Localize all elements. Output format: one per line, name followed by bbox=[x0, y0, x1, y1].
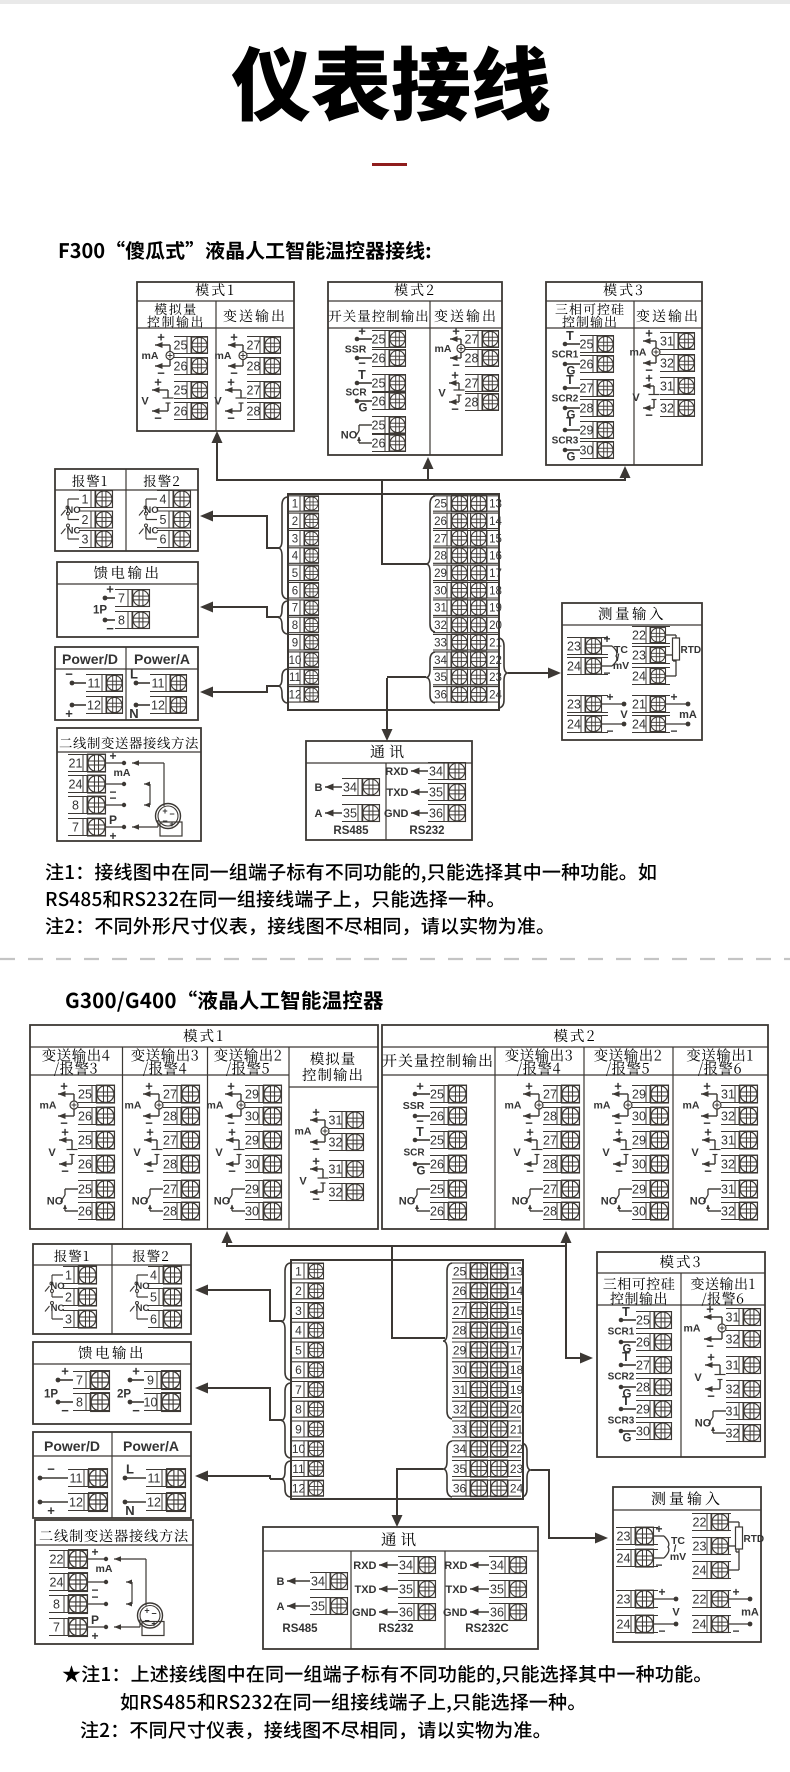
svg-text:7: 7 bbox=[76, 1374, 83, 1388]
svg-text:+: + bbox=[146, 1125, 154, 1140]
svg-text:−: − bbox=[154, 411, 162, 426]
svg-text:27: 27 bbox=[465, 377, 479, 391]
svg-text:35: 35 bbox=[434, 672, 447, 684]
svg-text:26: 26 bbox=[430, 1110, 444, 1124]
svg-text:28: 28 bbox=[163, 1205, 177, 1219]
svg-text:1: 1 bbox=[295, 1264, 302, 1278]
svg-text:RXD: RXD bbox=[385, 766, 408, 778]
svg-text:+: + bbox=[706, 1302, 714, 1317]
svg-text:T: T bbox=[622, 1305, 630, 1319]
svg-text:NO: NO bbox=[132, 1196, 149, 1208]
svg-text:mA: mA bbox=[741, 1607, 759, 1619]
svg-text:27: 27 bbox=[580, 382, 594, 396]
svg-text:+: + bbox=[312, 1105, 320, 1120]
svg-text:23: 23 bbox=[489, 672, 502, 684]
svg-text:11: 11 bbox=[152, 677, 165, 691]
svg-text:31: 31 bbox=[329, 1114, 343, 1128]
svg-text:23: 23 bbox=[632, 649, 646, 663]
svg-text:4: 4 bbox=[150, 1269, 157, 1283]
svg-text:RS232: RS232 bbox=[378, 1623, 413, 1635]
svg-text:T: T bbox=[566, 373, 574, 387]
svg-text:14: 14 bbox=[489, 516, 502, 528]
svg-text:25: 25 bbox=[372, 377, 386, 391]
svg-text:+: + bbox=[707, 1350, 715, 1365]
svg-text:+: + bbox=[615, 1125, 623, 1140]
svg-text:21: 21 bbox=[69, 757, 83, 771]
svg-text:28: 28 bbox=[543, 1205, 557, 1219]
svg-text:28: 28 bbox=[543, 1110, 557, 1124]
svg-text:25: 25 bbox=[78, 1088, 92, 1102]
svg-text:V: V bbox=[620, 709, 628, 721]
svg-text:+: + bbox=[603, 632, 610, 646]
svg-text:28: 28 bbox=[247, 360, 261, 374]
svg-text:−: − bbox=[61, 1403, 69, 1418]
svg-text:30: 30 bbox=[245, 1158, 259, 1172]
svg-text:RTD: RTD bbox=[744, 1534, 765, 1545]
svg-text:26: 26 bbox=[174, 405, 188, 419]
svg-text:26: 26 bbox=[580, 358, 594, 372]
svg-text:+: + bbox=[162, 806, 167, 816]
svg-text:+: + bbox=[65, 706, 73, 721]
svg-text:TXD: TXD bbox=[446, 1584, 468, 1596]
svg-text:+: + bbox=[61, 1125, 69, 1140]
svg-text:mA: mA bbox=[684, 1323, 701, 1335]
svg-text:+: + bbox=[91, 1545, 98, 1559]
svg-text:28: 28 bbox=[453, 1324, 467, 1338]
svg-text:29: 29 bbox=[245, 1183, 259, 1197]
svg-text:32: 32 bbox=[660, 402, 674, 416]
svg-text:−: − bbox=[169, 809, 174, 819]
svg-text:30: 30 bbox=[636, 1425, 650, 1439]
svg-text:V: V bbox=[133, 1147, 141, 1159]
svg-text:35: 35 bbox=[490, 1583, 504, 1597]
svg-text:25: 25 bbox=[430, 1183, 444, 1197]
svg-text:+: + bbox=[525, 1079, 533, 1094]
svg-text:34: 34 bbox=[490, 1559, 504, 1573]
svg-text:10: 10 bbox=[144, 1396, 158, 1410]
svg-text:31: 31 bbox=[721, 1088, 735, 1102]
svg-text:23: 23 bbox=[617, 1530, 631, 1544]
svg-text:+: + bbox=[658, 1585, 665, 1599]
svg-text:T: T bbox=[566, 329, 574, 343]
svg-text:12: 12 bbox=[289, 690, 302, 702]
svg-text:13: 13 bbox=[510, 1264, 524, 1278]
svg-text:+: + bbox=[645, 371, 653, 386]
svg-text:16: 16 bbox=[489, 551, 502, 563]
svg-text:G: G bbox=[417, 1166, 426, 1178]
svg-text:−: − bbox=[655, 1558, 662, 1572]
svg-text:mA: mA bbox=[96, 1563, 113, 1575]
svg-text:+: + bbox=[106, 582, 114, 597]
svg-text:4: 4 bbox=[292, 551, 299, 563]
svg-text:mA: mA bbox=[630, 347, 647, 359]
svg-text:SCR3: SCR3 bbox=[552, 436, 579, 447]
svg-text:NO: NO bbox=[47, 1196, 64, 1208]
svg-text:+: + bbox=[132, 1364, 140, 1379]
svg-text:2: 2 bbox=[292, 516, 298, 528]
svg-text:−: − bbox=[732, 1624, 739, 1638]
svg-text:26: 26 bbox=[372, 437, 386, 451]
svg-text:L: L bbox=[126, 1462, 134, 1477]
svg-text:32: 32 bbox=[434, 620, 447, 632]
svg-text:32: 32 bbox=[726, 1333, 740, 1347]
svg-text:36: 36 bbox=[434, 690, 447, 702]
svg-text:+: + bbox=[732, 1585, 739, 1599]
svg-text:30: 30 bbox=[434, 585, 447, 597]
svg-text:+: + bbox=[526, 1125, 534, 1140]
svg-text:15: 15 bbox=[489, 533, 502, 545]
svg-text:25: 25 bbox=[372, 333, 386, 347]
svg-text:26: 26 bbox=[430, 1205, 444, 1219]
svg-text:32: 32 bbox=[453, 1403, 467, 1417]
svg-text:31: 31 bbox=[453, 1383, 467, 1397]
svg-text:RXD: RXD bbox=[353, 1560, 376, 1572]
svg-text:1P: 1P bbox=[93, 605, 107, 617]
svg-text:V: V bbox=[513, 1147, 521, 1159]
svg-text:−: − bbox=[704, 1164, 712, 1179]
svg-text:23: 23 bbox=[617, 1593, 631, 1607]
svg-text:3: 3 bbox=[65, 1313, 72, 1327]
svg-text:18: 18 bbox=[510, 1363, 524, 1377]
svg-text:8: 8 bbox=[295, 1403, 302, 1417]
svg-text:V: V bbox=[694, 1372, 702, 1384]
svg-text:35: 35 bbox=[429, 786, 443, 800]
svg-text:21: 21 bbox=[510, 1422, 524, 1436]
svg-text:−: − bbox=[227, 411, 235, 426]
svg-text:25: 25 bbox=[78, 1134, 92, 1148]
svg-text:mA: mA bbox=[207, 1100, 224, 1112]
svg-text:V: V bbox=[141, 396, 149, 408]
svg-text:9: 9 bbox=[292, 637, 298, 649]
svg-text:31: 31 bbox=[726, 1311, 740, 1325]
svg-text:+: + bbox=[358, 324, 366, 339]
svg-text:36: 36 bbox=[399, 1606, 413, 1620]
svg-text:−: − bbox=[603, 666, 610, 680]
svg-text:TXD: TXD bbox=[355, 1584, 377, 1596]
svg-text:11: 11 bbox=[289, 672, 301, 684]
svg-text:−: − bbox=[658, 1624, 665, 1638]
svg-text:NC: NC bbox=[145, 526, 159, 537]
svg-text:+: + bbox=[230, 330, 238, 345]
svg-text:29: 29 bbox=[434, 568, 447, 580]
svg-text:34: 34 bbox=[311, 1575, 325, 1589]
svg-text:SCR1: SCR1 bbox=[552, 350, 579, 361]
svg-text:SSR: SSR bbox=[403, 1100, 425, 1112]
svg-text:P: P bbox=[91, 1613, 99, 1627]
svg-text:34: 34 bbox=[343, 781, 357, 795]
svg-text:mA: mA bbox=[295, 1126, 312, 1138]
svg-text:G: G bbox=[359, 403, 368, 415]
svg-text:26: 26 bbox=[372, 352, 386, 366]
svg-text:+: + bbox=[614, 1079, 622, 1094]
svg-text:−: − bbox=[144, 1616, 149, 1626]
svg-text:mA: mA bbox=[683, 1100, 700, 1112]
svg-text:32: 32 bbox=[660, 357, 674, 371]
svg-text:4: 4 bbox=[295, 1324, 302, 1338]
svg-text:NO: NO bbox=[135, 1281, 149, 1292]
svg-text:32: 32 bbox=[726, 1383, 740, 1397]
svg-text:25: 25 bbox=[372, 419, 386, 433]
svg-text:31: 31 bbox=[721, 1134, 735, 1148]
svg-text:5: 5 bbox=[295, 1343, 302, 1357]
svg-text:34: 34 bbox=[399, 1559, 413, 1573]
svg-text:12: 12 bbox=[151, 699, 165, 713]
svg-text:+: + bbox=[416, 1079, 424, 1094]
svg-text:NO: NO bbox=[66, 505, 80, 516]
svg-text:−: − bbox=[151, 1609, 156, 1619]
svg-text:−: − bbox=[645, 408, 653, 423]
svg-text:28: 28 bbox=[163, 1158, 177, 1172]
svg-text:SCR1: SCR1 bbox=[608, 1327, 635, 1338]
svg-text:22: 22 bbox=[489, 655, 502, 667]
svg-text:2: 2 bbox=[82, 513, 89, 527]
svg-text:30: 30 bbox=[580, 444, 594, 458]
svg-text:22: 22 bbox=[632, 629, 646, 643]
svg-text:A: A bbox=[315, 808, 323, 820]
svg-text:31: 31 bbox=[660, 335, 674, 349]
svg-text:4: 4 bbox=[160, 493, 167, 507]
svg-text:22: 22 bbox=[50, 1553, 64, 1567]
svg-text:29: 29 bbox=[245, 1088, 259, 1102]
svg-text:NC: NC bbox=[51, 1303, 65, 1314]
svg-text:Power/A: Power/A bbox=[134, 651, 190, 667]
svg-text:+: + bbox=[109, 749, 116, 763]
svg-text:−: − bbox=[451, 402, 459, 417]
svg-text:35: 35 bbox=[311, 1600, 325, 1614]
svg-text:mV: mV bbox=[670, 1551, 686, 1563]
svg-text:NO: NO bbox=[341, 430, 358, 442]
svg-text:mA: mA bbox=[594, 1100, 611, 1112]
svg-text:B: B bbox=[315, 782, 323, 794]
svg-text:mA: mA bbox=[505, 1100, 522, 1112]
svg-text:mA: mA bbox=[215, 350, 232, 362]
svg-text:15: 15 bbox=[510, 1304, 524, 1318]
svg-text:27: 27 bbox=[247, 384, 261, 398]
svg-text:32: 32 bbox=[329, 1136, 343, 1150]
svg-text:31: 31 bbox=[660, 380, 674, 394]
svg-text:6: 6 bbox=[292, 585, 298, 597]
svg-text:25: 25 bbox=[78, 1183, 92, 1197]
svg-text:RXD: RXD bbox=[444, 1560, 467, 1572]
svg-text:9: 9 bbox=[147, 1374, 154, 1388]
svg-text:1: 1 bbox=[65, 1269, 72, 1283]
svg-text:24: 24 bbox=[693, 1564, 707, 1578]
svg-text:mV: mV bbox=[613, 660, 629, 672]
svg-text:7: 7 bbox=[72, 821, 79, 835]
svg-text:−: − bbox=[228, 1164, 236, 1179]
svg-text:30: 30 bbox=[632, 1158, 646, 1172]
svg-text:V: V bbox=[672, 1607, 680, 1619]
svg-text:NO: NO bbox=[512, 1196, 529, 1208]
svg-text:V: V bbox=[214, 396, 222, 408]
svg-text:25: 25 bbox=[636, 1314, 650, 1328]
svg-text:RTD: RTD bbox=[681, 645, 702, 656]
svg-text:−: − bbox=[132, 1403, 140, 1418]
svg-text:19: 19 bbox=[510, 1383, 524, 1397]
svg-text:3: 3 bbox=[295, 1304, 302, 1318]
svg-text:V: V bbox=[215, 1147, 223, 1159]
svg-text:V: V bbox=[632, 392, 640, 404]
svg-text:24: 24 bbox=[617, 1618, 631, 1632]
svg-text:+: + bbox=[144, 1606, 149, 1616]
svg-text:NO: NO bbox=[695, 1418, 712, 1430]
svg-text:32: 32 bbox=[721, 1158, 735, 1172]
svg-text:+: + bbox=[151, 1619, 156, 1629]
svg-text:24: 24 bbox=[69, 778, 83, 792]
svg-text:GND: GND bbox=[443, 1607, 468, 1619]
svg-text:+: + bbox=[157, 330, 165, 345]
svg-text:V: V bbox=[299, 1176, 307, 1188]
svg-text:mA: mA bbox=[142, 350, 159, 362]
svg-text:31: 31 bbox=[329, 1163, 343, 1177]
svg-text:26: 26 bbox=[78, 1110, 92, 1124]
svg-text:2: 2 bbox=[295, 1284, 302, 1298]
svg-text:14: 14 bbox=[510, 1284, 524, 1298]
svg-text:V: V bbox=[438, 388, 446, 400]
svg-text:TXD: TXD bbox=[387, 787, 409, 799]
svg-text:30: 30 bbox=[632, 1110, 646, 1124]
svg-text:32: 32 bbox=[726, 1427, 740, 1441]
svg-text:+: + bbox=[312, 1154, 320, 1169]
svg-text:V: V bbox=[602, 1147, 610, 1159]
svg-text:NC: NC bbox=[136, 1303, 150, 1314]
svg-text:Power/A: Power/A bbox=[123, 1438, 179, 1454]
svg-text:SCR: SCR bbox=[403, 1148, 425, 1159]
svg-text:+: + bbox=[227, 375, 235, 390]
svg-text:28: 28 bbox=[465, 352, 479, 366]
svg-text:26: 26 bbox=[430, 1158, 444, 1172]
svg-text:+: + bbox=[451, 368, 459, 383]
svg-text:23: 23 bbox=[510, 1462, 524, 1476]
svg-text:+: + bbox=[47, 1503, 55, 1518]
svg-text:−: − bbox=[615, 1164, 623, 1179]
svg-text:+: + bbox=[655, 1522, 662, 1536]
svg-text:2P: 2P bbox=[117, 1389, 131, 1401]
svg-text:10: 10 bbox=[289, 655, 302, 667]
svg-text:mA: mA bbox=[679, 709, 697, 721]
svg-text:26: 26 bbox=[78, 1205, 92, 1219]
svg-text:−: − bbox=[109, 791, 116, 805]
svg-text:25: 25 bbox=[453, 1264, 467, 1278]
svg-text:−: − bbox=[91, 1590, 98, 1604]
svg-text:21: 21 bbox=[489, 637, 502, 649]
svg-text:mA: mA bbox=[435, 343, 452, 355]
svg-text:24: 24 bbox=[632, 670, 646, 684]
svg-text:NO: NO bbox=[399, 1196, 416, 1208]
svg-text:25: 25 bbox=[174, 339, 188, 353]
svg-text:28: 28 bbox=[543, 1158, 557, 1172]
svg-text:+: + bbox=[452, 324, 460, 339]
svg-text:26: 26 bbox=[174, 360, 188, 374]
svg-text:7: 7 bbox=[53, 1621, 60, 1635]
svg-text:A: A bbox=[277, 1601, 285, 1613]
svg-text:SCR3: SCR3 bbox=[608, 1416, 635, 1427]
svg-text:G: G bbox=[623, 1433, 632, 1445]
svg-text:35: 35 bbox=[453, 1462, 467, 1476]
svg-text:3: 3 bbox=[292, 533, 298, 545]
svg-text:24: 24 bbox=[489, 690, 502, 702]
svg-text:T: T bbox=[622, 1394, 630, 1408]
svg-text:+: + bbox=[704, 1125, 712, 1140]
svg-text:22: 22 bbox=[693, 1516, 707, 1530]
svg-text:36: 36 bbox=[490, 1606, 504, 1620]
svg-text:SCR2: SCR2 bbox=[552, 394, 579, 405]
svg-text:26: 26 bbox=[636, 1336, 650, 1350]
svg-text:5: 5 bbox=[160, 513, 167, 527]
svg-text:18: 18 bbox=[489, 585, 502, 597]
svg-text:−: − bbox=[707, 1389, 715, 1404]
svg-text:28: 28 bbox=[434, 551, 447, 563]
svg-text:8: 8 bbox=[53, 1598, 60, 1612]
svg-text:29: 29 bbox=[632, 1183, 646, 1197]
svg-text:G: G bbox=[567, 452, 576, 464]
svg-text:9: 9 bbox=[295, 1422, 302, 1436]
svg-text:26: 26 bbox=[78, 1158, 92, 1172]
svg-text:−: − bbox=[312, 1192, 320, 1207]
svg-text:+: + bbox=[670, 690, 677, 704]
svg-text:NC: NC bbox=[67, 526, 81, 537]
svg-text:24: 24 bbox=[693, 1618, 707, 1632]
svg-text:25: 25 bbox=[580, 338, 594, 352]
svg-text:33: 33 bbox=[434, 637, 447, 649]
svg-text:−: − bbox=[61, 1164, 69, 1179]
svg-text:GND: GND bbox=[384, 808, 409, 820]
svg-text:34: 34 bbox=[434, 655, 447, 667]
svg-text:21: 21 bbox=[632, 698, 646, 712]
svg-text:24: 24 bbox=[632, 718, 646, 732]
svg-text:T: T bbox=[622, 1350, 630, 1364]
svg-text:SCR: SCR bbox=[345, 388, 367, 399]
svg-text:29: 29 bbox=[636, 1403, 650, 1417]
svg-text:−: − bbox=[162, 816, 167, 826]
svg-text:T: T bbox=[566, 415, 574, 429]
svg-text:7: 7 bbox=[118, 592, 125, 606]
svg-text:3: 3 bbox=[82, 533, 89, 547]
svg-text:25: 25 bbox=[434, 499, 447, 511]
svg-text:28: 28 bbox=[465, 396, 479, 410]
svg-text:22: 22 bbox=[510, 1442, 524, 1456]
svg-text:35: 35 bbox=[399, 1583, 413, 1597]
svg-text:30: 30 bbox=[245, 1205, 259, 1219]
svg-text:17: 17 bbox=[510, 1343, 524, 1357]
svg-text:−: − bbox=[65, 667, 73, 682]
svg-text:6: 6 bbox=[150, 1313, 157, 1327]
svg-text:mA: mA bbox=[40, 1100, 57, 1112]
svg-text:32: 32 bbox=[721, 1205, 735, 1219]
svg-text:28: 28 bbox=[636, 1381, 650, 1395]
svg-text:5: 5 bbox=[150, 1291, 157, 1305]
svg-text:31: 31 bbox=[726, 1405, 740, 1419]
svg-text:RS232: RS232 bbox=[409, 825, 444, 837]
svg-text:31: 31 bbox=[721, 1183, 735, 1197]
svg-text:36: 36 bbox=[429, 807, 443, 821]
svg-text:32: 32 bbox=[329, 1186, 343, 1200]
svg-text:B: B bbox=[277, 1576, 285, 1588]
svg-text:T: T bbox=[358, 368, 366, 382]
svg-text:19: 19 bbox=[489, 603, 502, 615]
svg-text:T: T bbox=[416, 1125, 424, 1139]
svg-text:GND: GND bbox=[352, 1607, 377, 1619]
svg-text:29: 29 bbox=[580, 424, 594, 438]
svg-text:12: 12 bbox=[69, 1496, 83, 1510]
svg-text:26: 26 bbox=[453, 1284, 467, 1298]
svg-text:29: 29 bbox=[245, 1134, 259, 1148]
svg-text:L: L bbox=[130, 667, 138, 682]
svg-text:−: − bbox=[526, 1164, 534, 1179]
svg-text:NO: NO bbox=[601, 1196, 618, 1208]
svg-text:+: + bbox=[109, 829, 116, 843]
svg-text:35: 35 bbox=[343, 807, 357, 821]
